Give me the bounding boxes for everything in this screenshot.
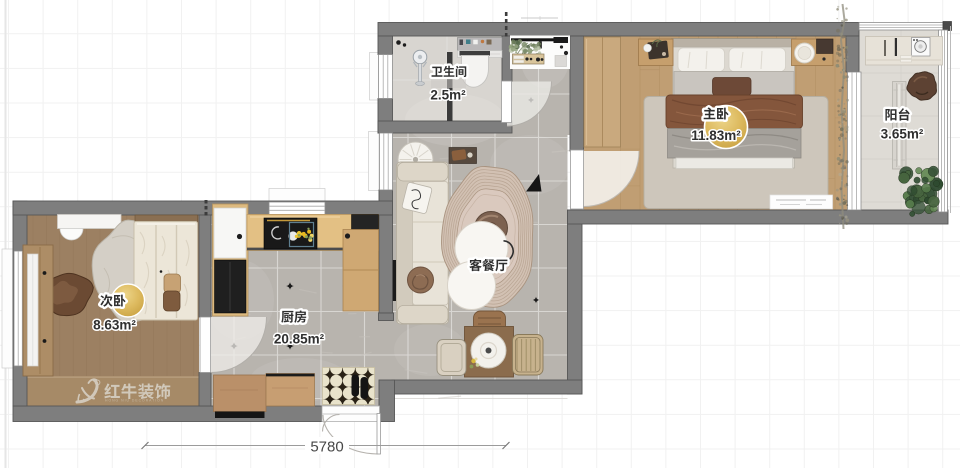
svg-text:20.85m²: 20.85m² <box>274 332 325 347</box>
svg-text:11.83m²: 11.83m² <box>691 128 741 143</box>
svg-text:HONG NIU DECORATION: HONG NIU DECORATION <box>105 399 164 403</box>
svg-text:3.65m²: 3.65m² <box>881 127 924 142</box>
svg-text:8.63m²: 8.63m² <box>93 318 136 333</box>
svg-text:5780: 5780 <box>310 439 343 456</box>
svg-text:2.5m²: 2.5m² <box>430 88 466 103</box>
